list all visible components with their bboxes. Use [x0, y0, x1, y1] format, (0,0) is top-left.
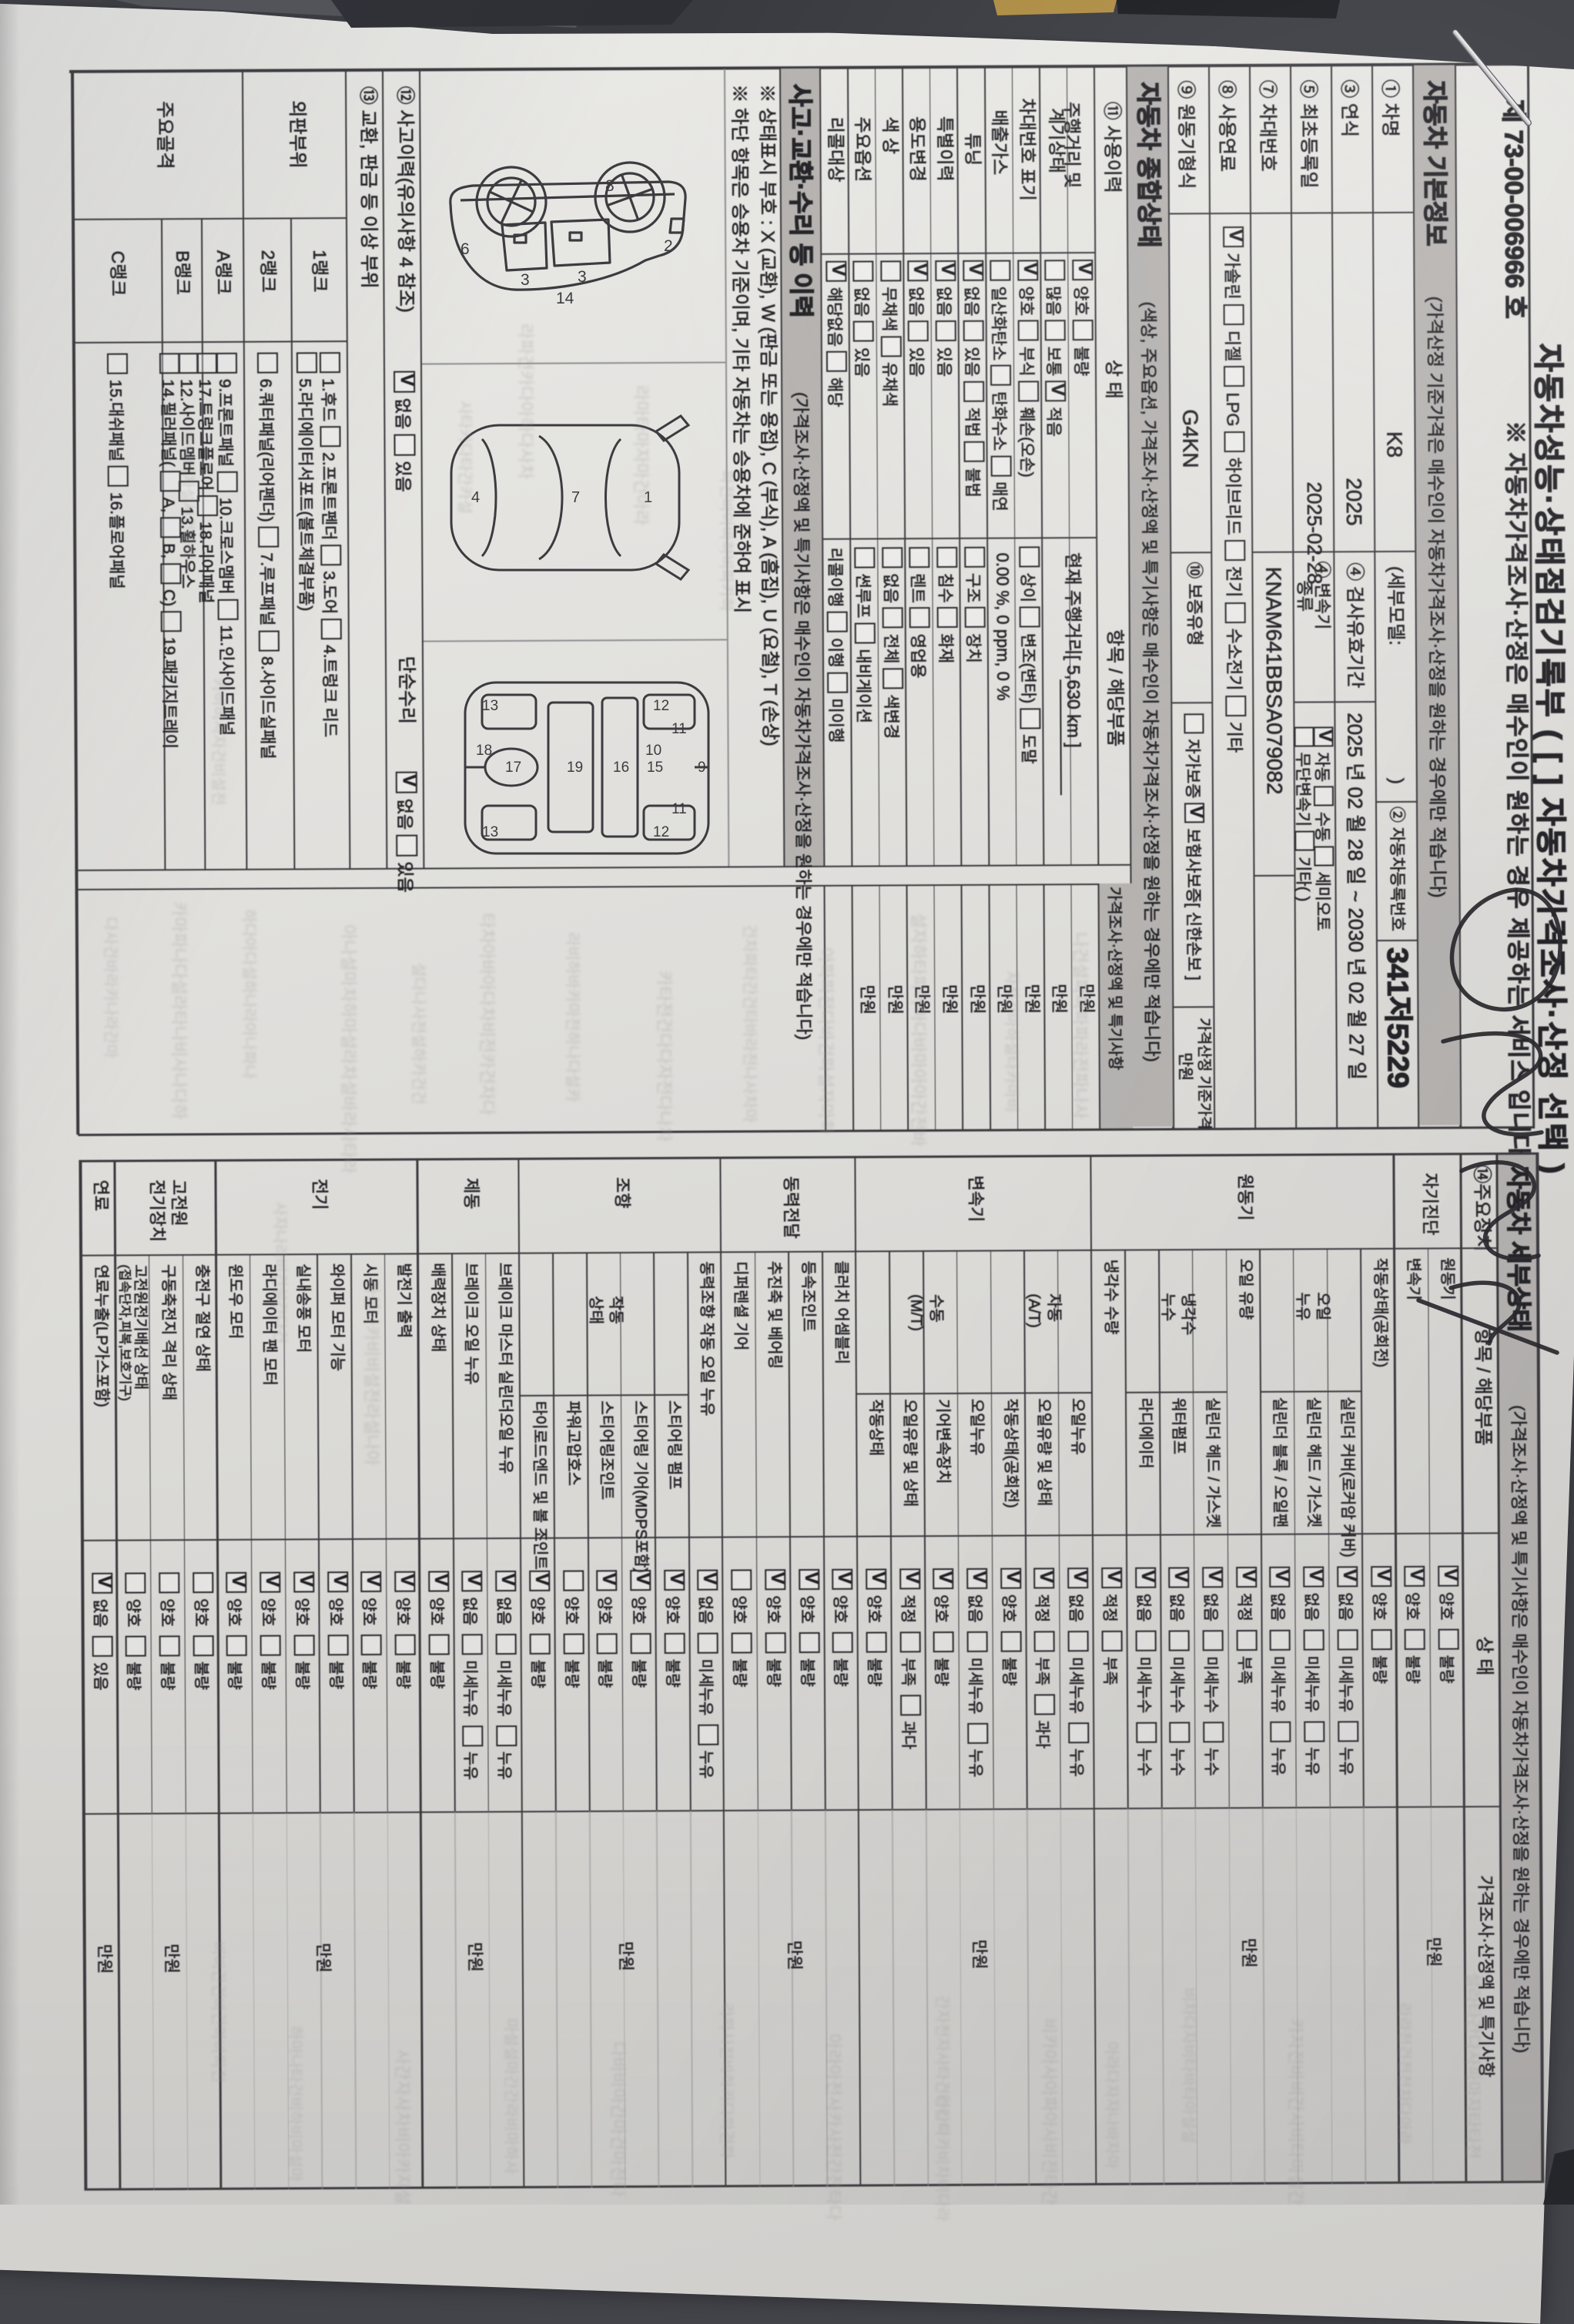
svg-text:6: 6 — [460, 240, 470, 258]
svg-text:9: 9 — [698, 760, 706, 776]
svg-text:7: 7 — [571, 489, 580, 506]
svg-text:13: 13 — [482, 824, 498, 840]
svg-text:3: 3 — [521, 271, 530, 289]
svg-text:11: 11 — [671, 721, 687, 737]
svg-text:8: 8 — [605, 177, 615, 195]
svg-text:1: 1 — [644, 489, 652, 506]
svg-text:14: 14 — [556, 290, 574, 307]
svg-text:18: 18 — [476, 743, 492, 759]
svg-text:12: 12 — [653, 698, 669, 714]
svg-text:16: 16 — [613, 760, 629, 776]
svg-text:11: 11 — [671, 801, 687, 817]
svg-text:13: 13 — [482, 698, 498, 714]
svg-text:19: 19 — [567, 760, 583, 776]
svg-text:2: 2 — [664, 237, 673, 255]
svg-text:12: 12 — [653, 824, 669, 840]
svg-text:15: 15 — [647, 760, 663, 776]
svg-text:17: 17 — [505, 760, 521, 776]
svg-text:10: 10 — [645, 743, 661, 759]
svg-text:3: 3 — [578, 268, 587, 286]
svg-text:4: 4 — [471, 489, 480, 506]
